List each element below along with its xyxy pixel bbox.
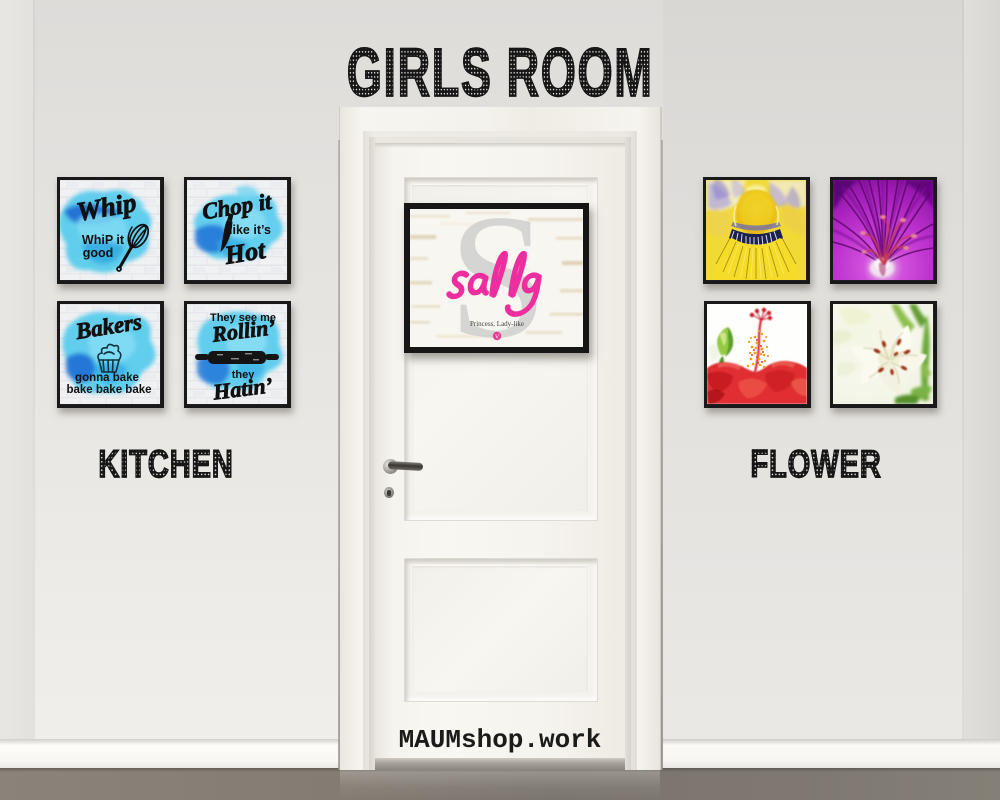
svg-text:like it’s: like it’s	[229, 223, 271, 237]
svg-text:good: good	[83, 246, 114, 260]
svg-text:WhiP it: WhiP it	[82, 233, 125, 247]
svg-text:V: V	[495, 335, 500, 341]
svg-text:Princess, Lady-like: Princess, Lady-like	[470, 320, 524, 328]
svg-text:gonna bake: gonna bake	[75, 372, 139, 384]
svg-text:bake bake bake: bake bake bake	[66, 384, 151, 396]
